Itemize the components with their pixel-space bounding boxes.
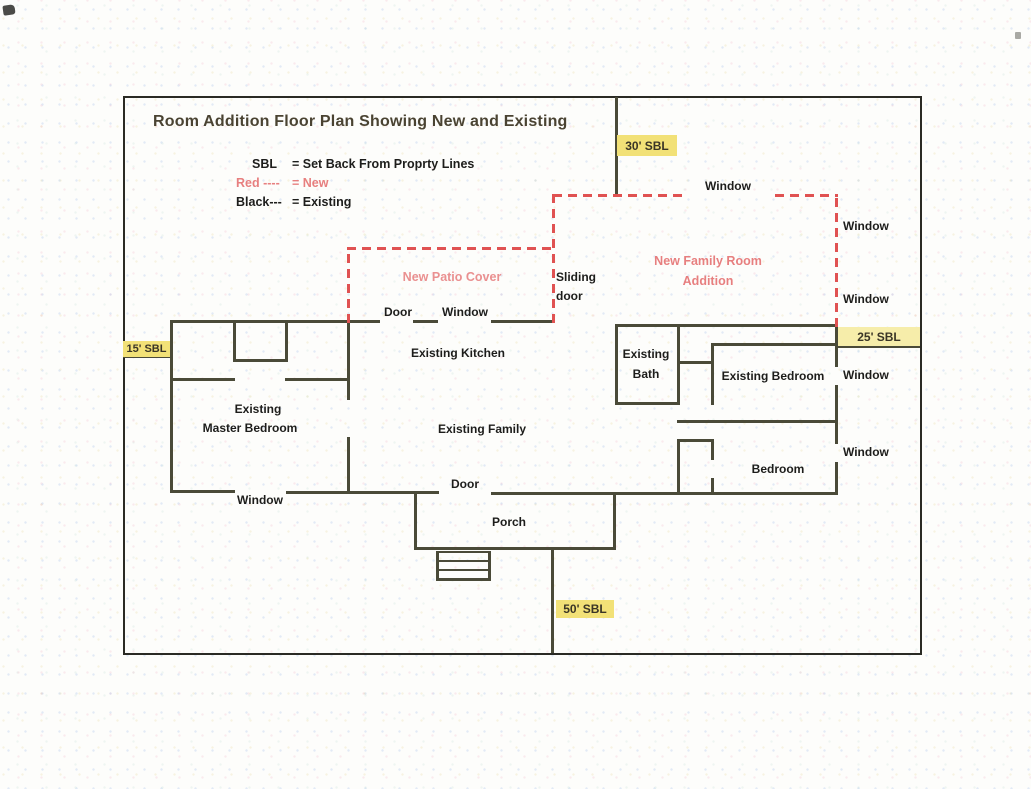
- legend-term-red: Red ----: [236, 176, 280, 190]
- steps-bottom: [436, 578, 491, 581]
- wall-bedroom2-closet-top: [677, 439, 714, 442]
- wall-porch-left: [414, 493, 417, 550]
- wall-master-top-b: [285, 378, 350, 381]
- wall-bedroom-divider: [677, 420, 838, 423]
- label-new-family-room-line2: Addition: [683, 275, 734, 288]
- wall-closet-left: [233, 320, 236, 362]
- label-window-existing-bedroom: Window: [843, 369, 889, 381]
- legend-term-black: Black---: [236, 195, 282, 209]
- label-new-patio-cover: New Patio Cover: [403, 271, 502, 284]
- label-bedroom: Bedroom: [752, 463, 805, 475]
- label-window-addition-top: Window: [705, 180, 751, 192]
- label-existing-kitchen: Existing Kitchen: [411, 347, 505, 359]
- new-family-top-edge-b: [775, 194, 838, 197]
- label-new-family-room-line1: New Family Room: [654, 255, 762, 268]
- steps-tread-1: [436, 551, 491, 553]
- wall-master-right-upper: [347, 320, 350, 400]
- wall-right-exterior-c: [835, 462, 838, 495]
- wall-top-segment-c: [491, 320, 554, 323]
- wall-bath-left: [615, 324, 618, 405]
- wall-bath-right: [677, 324, 680, 405]
- scan-artifact-corner: [2, 4, 15, 16]
- label-window-bedroom: Window: [843, 446, 889, 458]
- wall-bottom-segment-c: [491, 492, 838, 495]
- steps-left: [436, 551, 439, 581]
- wall-right-exterior-a: [835, 324, 838, 367]
- wall-bedroom2-closet-left: [677, 439, 680, 493]
- label-door-top: Door: [384, 306, 412, 318]
- label-porch: Porch: [492, 516, 526, 528]
- label-sliding-door-line1: Sliding: [556, 271, 596, 283]
- label-sliding-door-line2: door: [556, 290, 583, 302]
- setback-badge-30ft: 30' SBL: [617, 135, 677, 156]
- wall-closet-bottom: [233, 359, 288, 362]
- legend-def-red: = New: [292, 176, 328, 190]
- setback-badge-15ft: 15' SBL: [123, 341, 170, 357]
- wall-top-segment-b: [413, 320, 438, 323]
- label-existing-bath-line2: Bath: [633, 368, 660, 380]
- wall-master-top-a: [170, 378, 235, 381]
- wall-wing-top: [615, 324, 838, 327]
- label-window-top-wall: Window: [442, 306, 488, 318]
- steps-tread-3: [436, 569, 491, 571]
- wall-bedroom2-closet-right-a: [711, 439, 714, 460]
- label-existing-family: Existing Family: [438, 423, 526, 435]
- scanned-floor-plan-page: { "title": "Room Addition Floor Plan Sho…: [0, 0, 1031, 789]
- wall-hall-jog: [677, 361, 714, 364]
- steps-right: [488, 551, 491, 581]
- wall-bath-bottom: [615, 402, 679, 405]
- label-window-bottom: Window: [237, 494, 283, 506]
- label-window-addition-right1: Window: [843, 220, 889, 232]
- plan-title: Room Addition Floor Plan Showing New and…: [153, 113, 568, 131]
- legend-def-sbl: = Set Back From Proprty Lines: [292, 157, 474, 171]
- wall-bottom-segment-a: [170, 490, 235, 493]
- new-family-right-edge: [835, 194, 838, 327]
- label-existing-bedroom: Existing Bedroom: [722, 370, 825, 382]
- label-window-addition-right2: Window: [843, 293, 889, 305]
- wall-master-right-lower: [347, 437, 350, 493]
- wall-hall-vertical: [711, 344, 714, 405]
- label-door-bottom: Door: [451, 478, 479, 490]
- wall-closet-right: [285, 320, 288, 362]
- legend-term-sbl: SBL: [252, 157, 277, 171]
- label-master-bedroom-line1: Existing: [235, 403, 282, 415]
- scan-artifact-mark: [1015, 32, 1021, 39]
- wall-bedroom-closet-strip: [711, 343, 838, 346]
- setback-badge-50ft: 50' SBL: [556, 600, 614, 618]
- new-family-left-edge: [552, 194, 555, 323]
- wall-porch-bottom: [414, 547, 616, 550]
- wall-left-exterior: [170, 320, 173, 493]
- wall-porch-right: [613, 493, 616, 550]
- label-existing-bath-line1: Existing: [623, 348, 670, 360]
- setback-badge-25ft: 25' SBL: [838, 327, 920, 346]
- label-master-bedroom-line2: Master Bedroom: [203, 422, 298, 434]
- new-patio-top-edge: [347, 247, 555, 250]
- wall-bedroom2-closet-right-b: [711, 478, 714, 494]
- new-family-top-edge-a: [553, 194, 683, 197]
- steps-tread-2: [436, 560, 491, 562]
- wall-right-exterior-b: [835, 385, 838, 444]
- legend-def-black: = Existing: [292, 195, 351, 209]
- new-patio-left-edge: [347, 247, 350, 323]
- setback-line-50ft: [551, 549, 554, 653]
